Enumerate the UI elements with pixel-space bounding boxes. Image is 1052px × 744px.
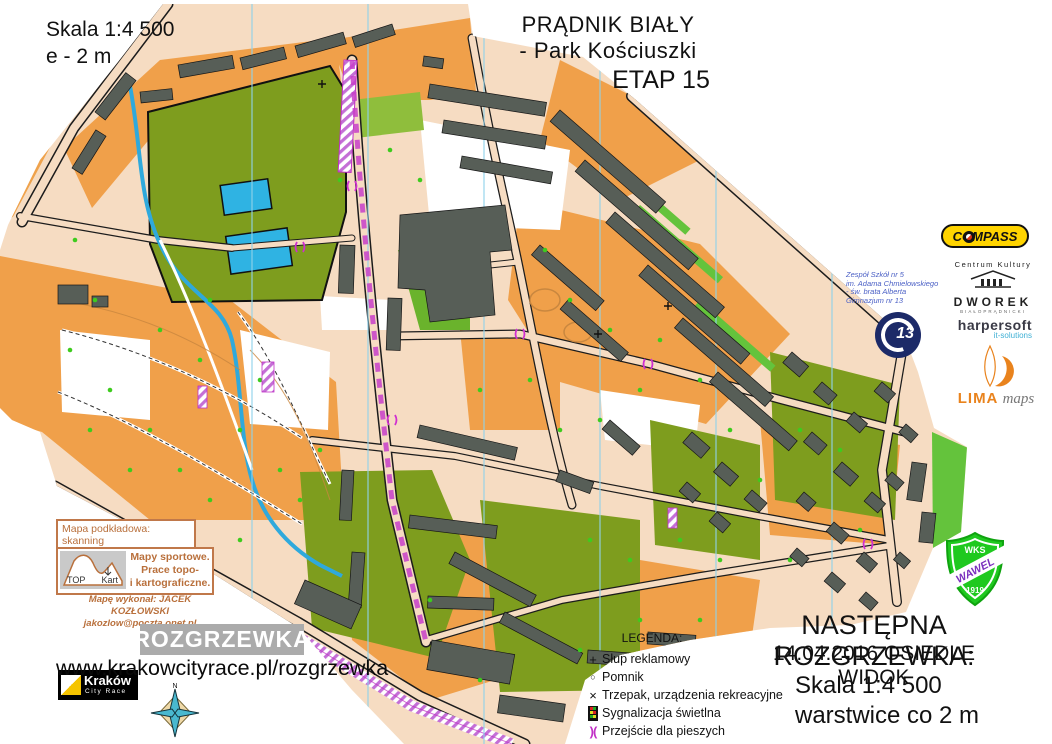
legend-item-traffic-light: Sygnalizacja świetlna: [584, 704, 783, 722]
map-title-line2: - Park Kościuszki: [492, 38, 724, 64]
services-line2: Prace topo-: [128, 564, 212, 577]
dworek-name: DWOREK: [953, 295, 1033, 309]
event-name-banner: ROZGRZEWKA: [140, 624, 304, 655]
wawel-wks: WKS: [965, 545, 986, 555]
next-event-scale: Skala 1:4 500: [795, 672, 942, 700]
lima-crescent-icon: [978, 344, 1020, 395]
lima-name: LIMA: [958, 390, 999, 407]
legend-item-pedestrian-crossing: )( Przejście dla pieszych: [584, 722, 783, 740]
lima-subtitle: maps: [1003, 391, 1035, 407]
cross-icon: ×: [584, 689, 602, 702]
map-scale-label: Skala 1:4 500: [46, 18, 174, 42]
krakow-logo-line2: City Race: [85, 688, 127, 695]
map-sheet: Skala 1:4 500 e - 2 m PRĄDNIK BIAŁY - Pa…: [0, 0, 1052, 744]
topkart-top-text: TOP: [67, 575, 85, 585]
legend-label: Trzepak, urządzenia rekreacyjne: [602, 688, 783, 702]
school-note: Zespół Szkół nr 5 im. Adama Chmielowskie…: [846, 271, 946, 305]
services-line1: Mapy sportowe.: [128, 551, 212, 564]
legend-title: LEGENDA:: [612, 631, 692, 645]
compass-logo: COMPASS: [941, 224, 1029, 248]
pond-small: [220, 179, 272, 215]
contour-interval-label: e - 2 m: [46, 45, 111, 69]
harpersoft-logo: harpersoft it-solutions: [956, 317, 1032, 340]
compass-needle-icon: [963, 231, 975, 243]
topkart-credit-box: TOP Kart Mapy sportowe. Prace topo- i ka…: [56, 547, 214, 595]
services-line3: i kartograficzne.: [128, 577, 212, 590]
dworek-subtitle: BIAŁOPRĄDNICKI: [953, 309, 1033, 314]
dworek-logo: Centrum Kultury DWOREK BIAŁOPRĄDNICKI: [953, 260, 1033, 314]
legend-label: Przejście dla pieszych: [602, 724, 725, 738]
author-name: Mapę wykonał: JACEK KOZŁOWSKI: [60, 594, 220, 618]
legend-label: Sygnalizacja świetlna: [602, 706, 721, 720]
wawel-club-badge: WKS WAWEL 1919: [941, 531, 1009, 614]
website-url[interactable]: www.krakowcityrace.pl/rozgrzewka: [56, 656, 388, 681]
stage-label: ETAP 15: [596, 66, 726, 95]
topkart-services: Mapy sportowe. Prace topo- i kartografic…: [128, 549, 212, 593]
topkart-logo: TOP Kart: [60, 551, 126, 589]
map-title-line1: PRĄDNIK BIAŁY: [498, 12, 718, 38]
g13-logo: 13: [875, 312, 921, 358]
legend-label: Pomnik: [602, 670, 644, 684]
circle-icon: ○: [584, 671, 602, 684]
plus-icon: +: [584, 653, 602, 666]
next-event-contours: warstwice co 2 m: [795, 702, 979, 730]
compass-rose-icon: N: [146, 680, 204, 744]
basemap-credit-line1: Mapa podkładowa: skanning: [62, 523, 190, 547]
legend-label: Słup reklamowy: [602, 652, 690, 666]
lima-logo-text: LIMA maps: [956, 390, 1036, 408]
dworek-line1: Centrum Kultury: [953, 260, 1033, 269]
g13-number: 13: [896, 325, 914, 343]
school-note-line: Gimnazjum nr 13: [846, 297, 946, 306]
wawel-year: 1919: [966, 586, 984, 595]
dworek-building-icon: [953, 269, 1033, 289]
pedestrian-crossing-icon: )(: [584, 725, 602, 738]
traffic-light-icon: [584, 706, 602, 721]
topkart-kart-text: Kart: [101, 575, 118, 585]
